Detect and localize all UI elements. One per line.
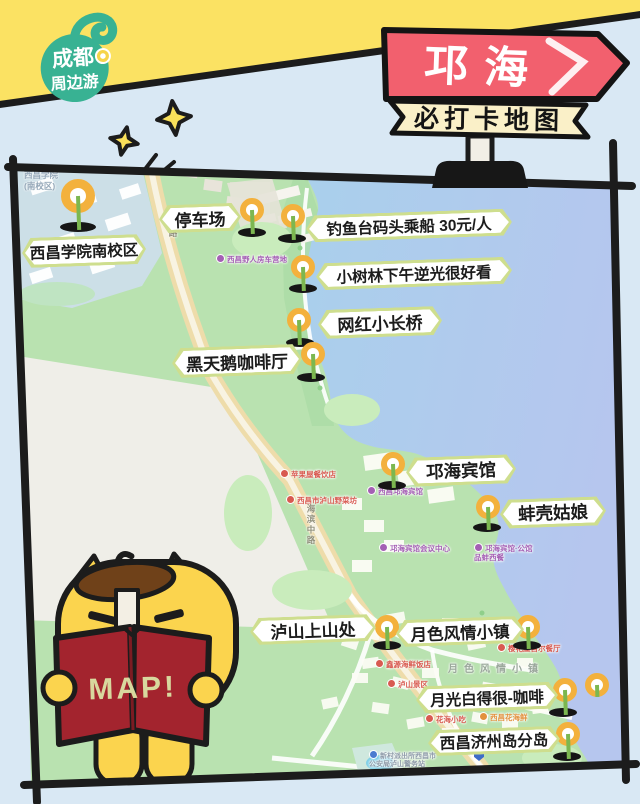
poi-dot-icon: [479, 712, 488, 721]
poi-snack-shop: 花海小吃: [425, 714, 466, 724]
spot-label-lushan: 泸山上山处: [250, 614, 377, 645]
poi-campsite: 西昌野人房车营地: [216, 254, 287, 264]
poi-dot-icon: [387, 679, 396, 688]
poi-apple-house: 苹果屋餐饮店: [280, 469, 336, 479]
poi-dot-icon: [216, 254, 225, 263]
sign-title-text: 邛海: [423, 41, 545, 94]
village-area-label: 月色风情小镇: [448, 660, 544, 675]
poi-lushan-scenic: 泸山景区: [387, 679, 428, 689]
poi-police-station: 新村派出所西昌市公安局泸山警务站: [369, 750, 436, 770]
poi-dot-icon: [280, 469, 289, 478]
poi-wild-veg: 西昌市泸山野菜坊: [286, 495, 357, 505]
spot-label-clam-girl: 蚌壳姑娘: [500, 496, 607, 529]
logo-blob: [38, 32, 111, 105]
poi-seafood-restaurant: 鑫源海鲜饭店: [375, 659, 431, 669]
poi-dot-icon: [369, 750, 378, 759]
banner-edge-line: [0, 14, 640, 105]
road-label-haibin: 海滨中路: [305, 504, 317, 546]
poi-dot-icon: [367, 486, 376, 495]
poi-dot-icon: [379, 543, 388, 552]
sign-subtitle-text: 必打卡地图: [414, 105, 564, 136]
campus-area-label: 西昌学院(南校区): [24, 170, 58, 191]
spot-label-parking: 停车场: [159, 203, 242, 234]
poi-flower-seafood: 西昌花海鲜: [479, 712, 528, 722]
poi-conference-center: 邛海宾馆会议中心: [379, 543, 450, 553]
poi-dot-icon: [474, 543, 483, 552]
map-area: 西昌野人房车营地 苹果屋餐饮店 西昌市泸山野菜坊 西昌邛海宾馆 邛海宾馆会议中心…: [12, 158, 628, 790]
spot-label-bridge: 网红小长桥: [318, 306, 443, 339]
spot-label-hotel: 邛海宾馆: [406, 454, 517, 487]
spot-label-campus: 西昌学院南校区: [22, 234, 147, 268]
logo-line1: 成都: [51, 45, 95, 72]
camera-lens-icon: [100, 53, 106, 59]
spot-label-swan-cafe: 黑天鹅咖啡厅: [172, 344, 303, 379]
poi-dot-icon: [375, 659, 384, 668]
spot-label-jeju: 西昌济州岛分岛: [428, 726, 561, 757]
sign-pole: [468, 136, 492, 172]
poi-mansion: 邛海宾馆·公馆品蚌西餐: [474, 543, 533, 562]
brand-logo: 成都 周边游: [20, 8, 130, 108]
camera-icon: [95, 49, 110, 64]
poi-dot-icon: [425, 714, 434, 723]
sign-arrow-board: 邛海: [384, 30, 627, 99]
logo-swirl: [73, 16, 113, 42]
yellow-banner: [0, 0, 640, 104]
poster: 西昌野人房车营地 苹果屋餐饮店 西昌市泸山野菜坊 西昌邛海宾馆 邛海宾馆会议中心…: [0, 0, 640, 804]
campus-green: [19, 282, 95, 306]
spot-label-moon-town: 月色风情小镇: [396, 616, 525, 647]
spot-label-moon-cafe: 月光白得很-咖啡: [416, 682, 559, 714]
poi-dot-icon: [497, 643, 506, 652]
poi-dot-icon: [286, 495, 295, 504]
logo-line2: 周边游: [50, 71, 99, 93]
sign-highlight: [549, 41, 583, 92]
sparkle-icon: [107, 99, 192, 172]
sign-ribbon: 必打卡地图: [390, 101, 588, 137]
